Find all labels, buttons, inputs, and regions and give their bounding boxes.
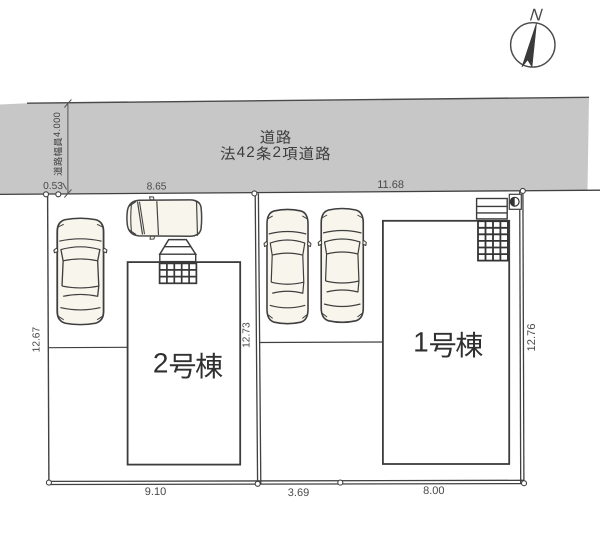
- svg-text:8.65: 8.65: [147, 181, 167, 192]
- svg-text:4: 4: [52, 132, 62, 137]
- svg-text:0.53: 0.53: [43, 181, 63, 192]
- svg-text:0: 0: [52, 112, 62, 117]
- svg-text:11.68: 11.68: [377, 179, 404, 191]
- svg-text:3.69: 3.69: [288, 487, 309, 499]
- svg-text:12.76: 12.76: [526, 324, 538, 352]
- svg-text:12.73: 12.73: [242, 322, 253, 348]
- svg-text:9.10: 9.10: [145, 486, 166, 498]
- svg-text:2: 2: [153, 348, 169, 379]
- svg-text:8.00: 8.00: [423, 485, 444, 497]
- svg-text:2: 2: [246, 144, 255, 161]
- svg-text:0: 0: [52, 123, 62, 128]
- svg-text:2: 2: [273, 144, 282, 161]
- svg-text:1: 1: [413, 327, 429, 358]
- svg-text:12.67: 12.67: [31, 327, 42, 353]
- svg-text:4: 4: [237, 144, 246, 161]
- svg-text:0: 0: [52, 118, 62, 123]
